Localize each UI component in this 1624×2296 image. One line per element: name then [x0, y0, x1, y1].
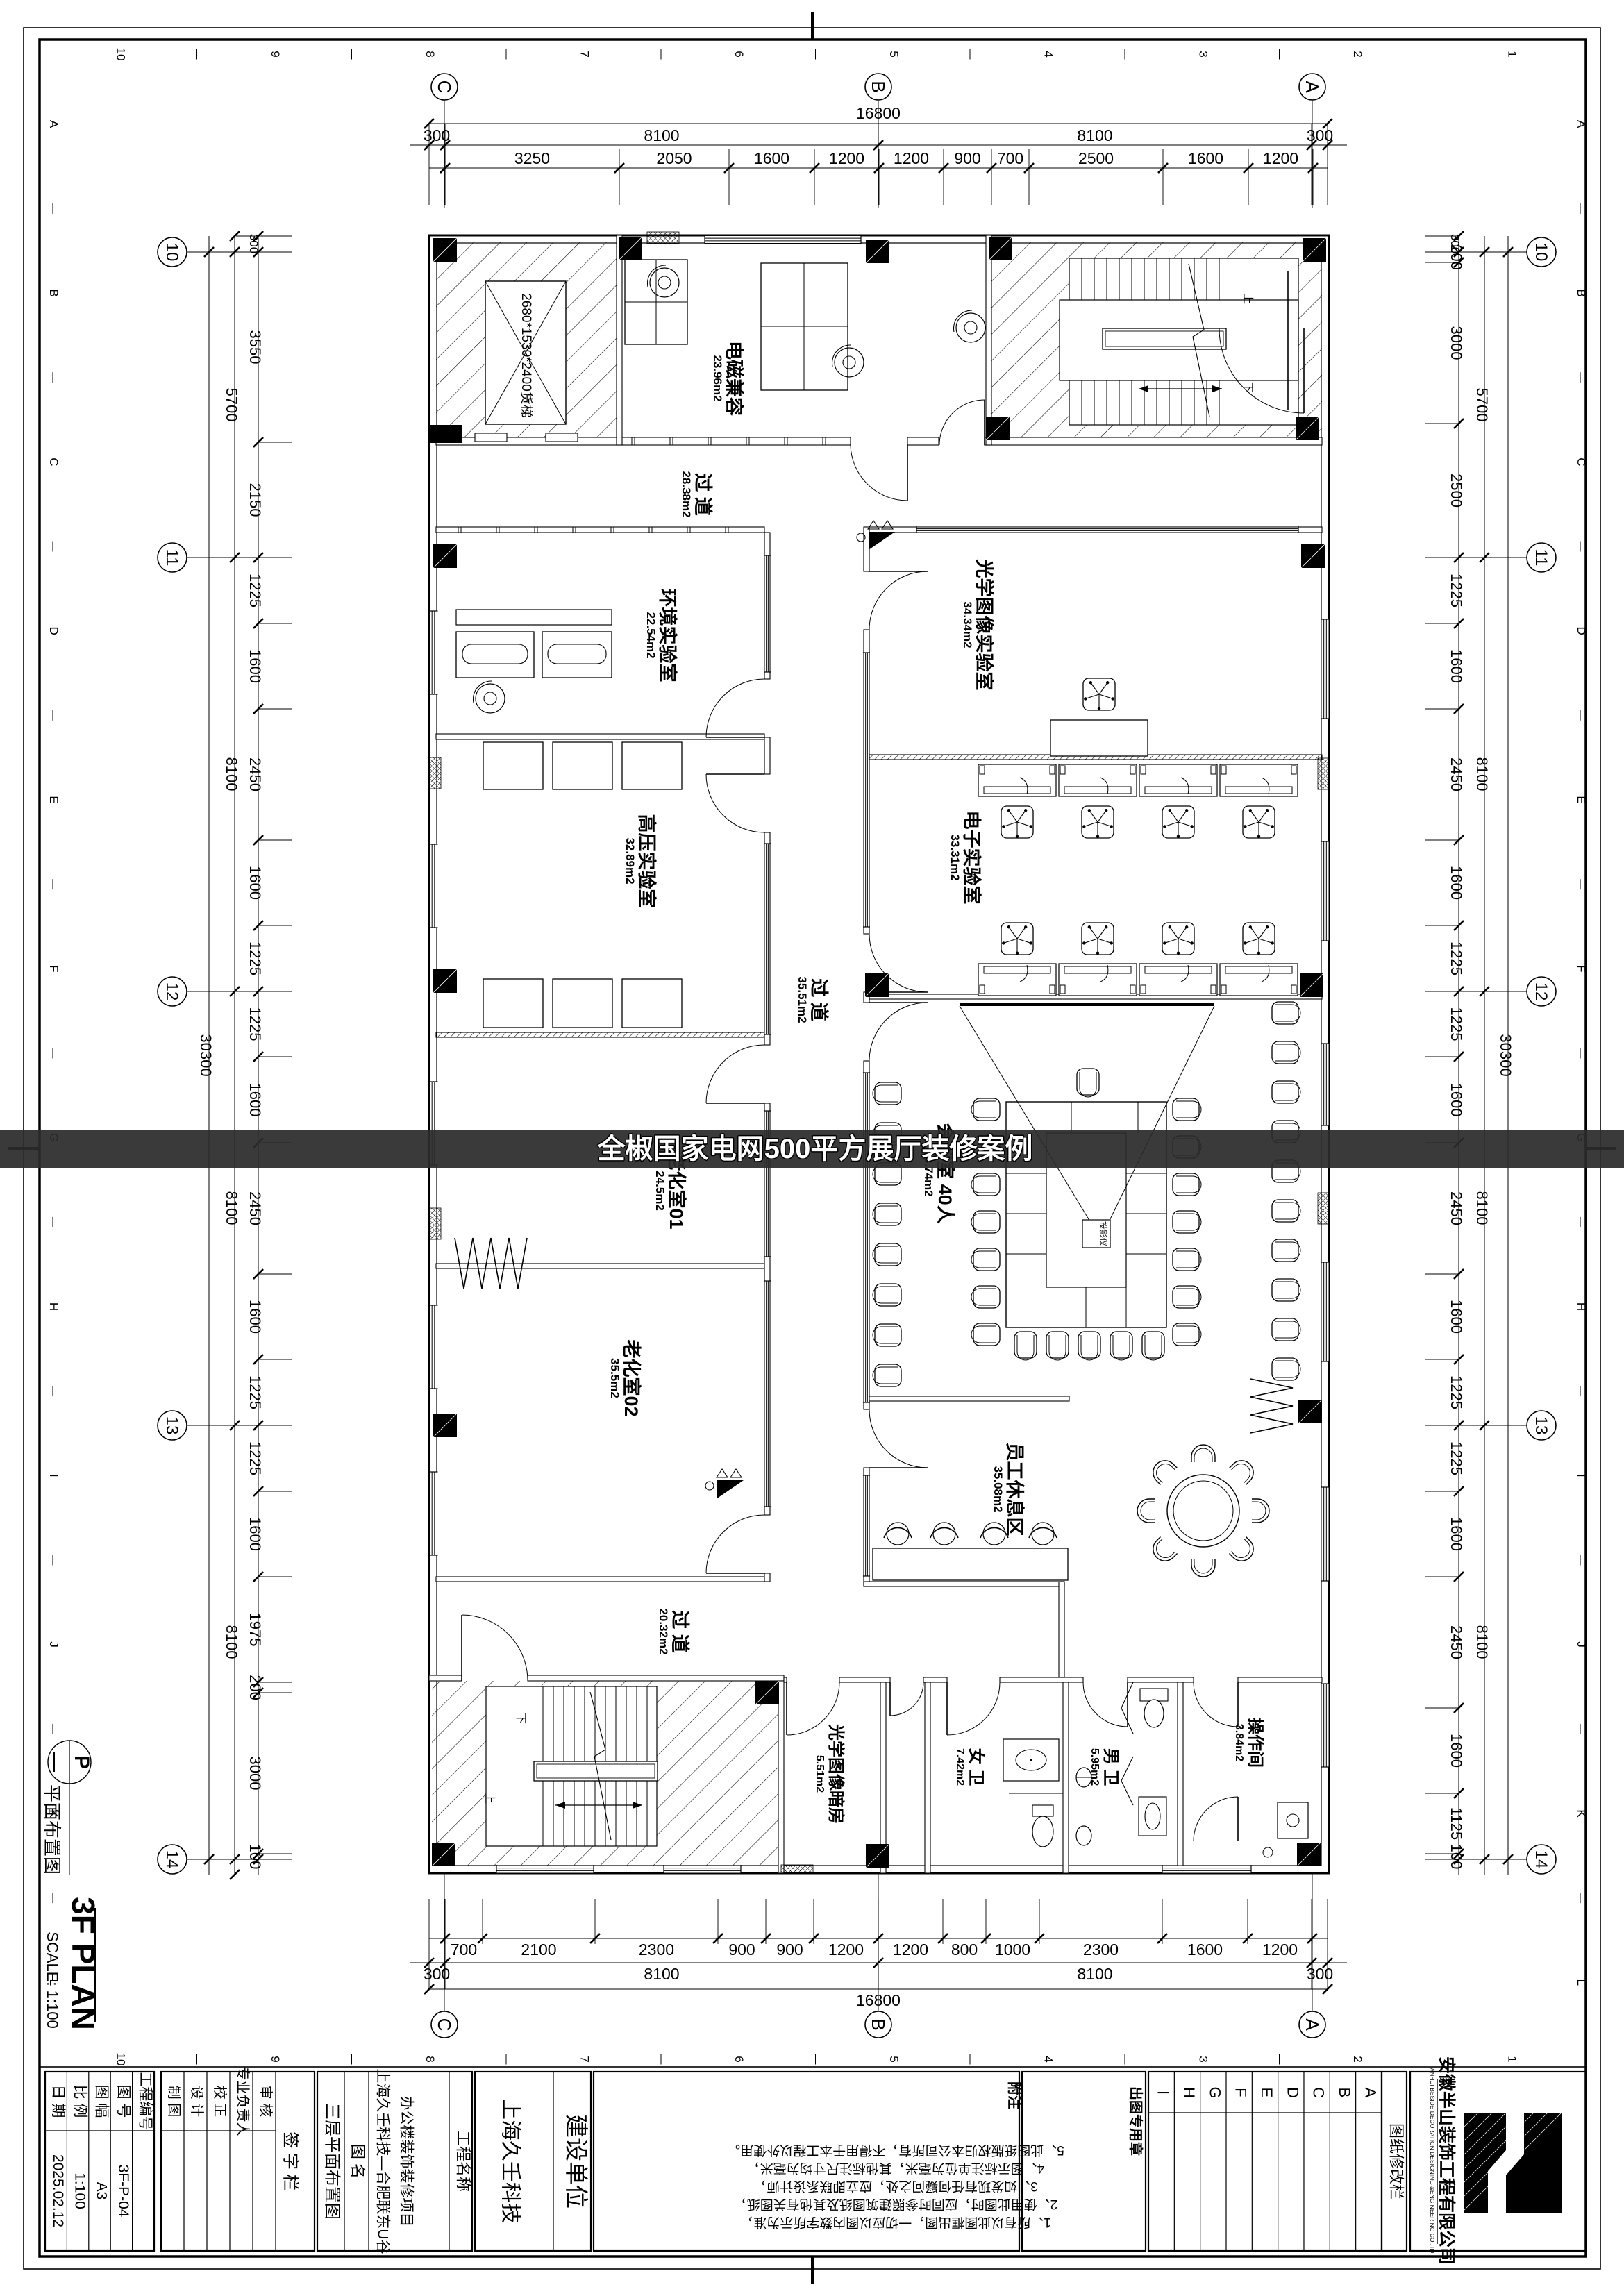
svg-text:1600: 1600 — [1448, 1083, 1465, 1117]
svg-text:10: 10 — [1532, 243, 1550, 262]
svg-text:办公楼装饰装修项目: 办公楼装饰装修项目 — [398, 2096, 414, 2227]
svg-text:1600: 1600 — [1448, 866, 1465, 900]
svg-text:300: 300 — [1448, 234, 1462, 253]
svg-text:—: — — [655, 2054, 667, 2065]
svg-text:三层平面布置图: 三层平面布置图 — [322, 2103, 341, 2220]
svg-text:1: 1 — [1506, 2056, 1519, 2062]
svg-text:—: — — [346, 49, 358, 59]
svg-text:3000: 3000 — [1448, 326, 1465, 360]
svg-text:1125: 1125 — [1448, 1807, 1465, 1840]
svg-text:L: L — [1575, 1979, 1588, 1986]
svg-text:900: 900 — [728, 1941, 755, 1959]
svg-text:过 道: 过 道 — [669, 1610, 691, 1653]
svg-text:K: K — [1575, 1809, 1588, 1818]
svg-text:2450: 2450 — [1448, 1625, 1465, 1659]
svg-text:2450: 2450 — [1448, 1191, 1465, 1225]
svg-text:J: J — [47, 1641, 60, 1648]
svg-text:B: B — [1575, 289, 1588, 296]
svg-text:员工休息区: 员工休息区 — [1004, 1443, 1026, 1536]
svg-text:2300: 2300 — [639, 1941, 674, 1959]
svg-text:审 核: 审 核 — [258, 2086, 274, 2118]
svg-text:9: 9 — [269, 51, 282, 57]
svg-text:2、使用此图时，应同时参照建筑图纸及其他有关图纸，: 2、使用此图时，应同时参照建筑图纸及其他有关图纸， — [734, 2197, 1058, 2212]
svg-text:—: — — [1575, 710, 1587, 721]
svg-text:32.89m2: 32.89m2 — [623, 837, 637, 884]
svg-text:900: 900 — [954, 149, 980, 167]
svg-text:1600: 1600 — [1187, 1941, 1223, 1959]
svg-text:8100: 8100 — [223, 1191, 240, 1225]
svg-text:5: 5 — [887, 2056, 901, 2062]
svg-text:—: — — [346, 2054, 358, 2065]
svg-text:B: B — [868, 2018, 889, 2030]
svg-text:800: 800 — [951, 1941, 978, 1959]
svg-text:13: 13 — [1532, 1416, 1550, 1435]
svg-text:1600: 1600 — [1188, 149, 1223, 167]
svg-text:D: D — [1575, 627, 1588, 635]
svg-text:1200: 1200 — [893, 1941, 928, 1959]
svg-text:700: 700 — [997, 149, 1023, 167]
svg-text:5.51m2: 5.51m2 — [814, 1755, 826, 1793]
svg-text:—: — — [501, 49, 512, 60]
svg-text:3: 3 — [1196, 51, 1209, 57]
svg-text:—: — — [810, 2054, 822, 2065]
svg-text:5700: 5700 — [223, 388, 240, 422]
svg-text:ANHUI BESIDE DECORATION DESIGN: ANHUI BESIDE DECORATION DESIGNING &ENGIN… — [1429, 2068, 1436, 2253]
svg-text:8100: 8100 — [223, 757, 240, 791]
svg-text:男 卫: 男 卫 — [1101, 1748, 1120, 1786]
svg-text:图 名: 图 名 — [349, 2144, 367, 2179]
svg-text:—: — — [1119, 2054, 1131, 2065]
svg-text:电磁兼容: 电磁兼容 — [723, 341, 745, 416]
svg-text:J: J — [1575, 1641, 1588, 1648]
svg-text:女 卫: 女 卫 — [966, 1748, 986, 1786]
svg-text:30300: 30300 — [1497, 1034, 1514, 1076]
svg-text:—: — — [1274, 49, 1286, 60]
svg-text:平面布置图: 平面布置图 — [42, 1784, 62, 1875]
svg-text:H: H — [47, 1302, 60, 1311]
svg-text:30300: 30300 — [197, 1034, 215, 1076]
svg-text:—: — — [1575, 879, 1587, 889]
svg-text:—: — — [47, 710, 59, 721]
svg-text:D: D — [47, 627, 60, 635]
svg-text:制 图: 制 图 — [166, 2086, 182, 2118]
svg-text:1600: 1600 — [246, 1300, 264, 1334]
svg-text:1200: 1200 — [829, 149, 864, 167]
svg-text:—: — — [1428, 49, 1440, 60]
svg-text:20.32m2: 20.32m2 — [657, 1608, 670, 1654]
svg-text:7: 7 — [578, 51, 591, 57]
svg-text:A: A — [47, 120, 60, 128]
svg-text:C: C — [1575, 458, 1588, 466]
svg-text:E: E — [1258, 2088, 1275, 2098]
svg-text:—: — — [501, 2054, 512, 2065]
svg-text:23.96m2: 23.96m2 — [711, 355, 724, 401]
svg-text:3000: 3000 — [246, 1757, 264, 1791]
svg-text:高压实验室: 高压实验室 — [636, 814, 658, 908]
svg-text:校 正: 校 正 — [212, 2086, 228, 2118]
svg-text:300: 300 — [424, 126, 450, 144]
svg-text:—: — — [964, 49, 976, 60]
svg-text:7: 7 — [578, 2056, 591, 2062]
svg-text:10: 10 — [162, 243, 181, 262]
svg-text:C: C — [434, 81, 455, 94]
svg-text:1600: 1600 — [1448, 1300, 1465, 1334]
svg-text:2450: 2450 — [1448, 757, 1465, 791]
svg-text:1200: 1200 — [1262, 1941, 1298, 1959]
svg-text:3F PLAN: 3F PLAN — [65, 1897, 101, 2030]
svg-text:过 道: 过 道 — [692, 473, 714, 516]
svg-text:—: — — [1119, 49, 1131, 60]
svg-text:2150: 2150 — [246, 483, 264, 517]
svg-text:3.84m2: 3.84m2 — [1233, 1724, 1245, 1761]
svg-text:300: 300 — [247, 234, 260, 253]
svg-text:1、所有以此图框出图，一切应以图内数字所示为准，: 1、所有以此图框出图，一切应以图内数字所示为准， — [740, 2215, 1051, 2230]
svg-text:—: — — [1575, 1893, 1587, 1903]
svg-text:12: 12 — [1532, 982, 1550, 1001]
svg-text:P: P — [70, 1755, 93, 1769]
svg-text:G: G — [1206, 2086, 1223, 2098]
svg-text:6: 6 — [733, 2056, 746, 2062]
svg-text:35.08m2: 35.08m2 — [991, 1466, 1005, 1512]
svg-text:8: 8 — [424, 51, 437, 57]
svg-text:1200: 1200 — [894, 149, 929, 167]
svg-text:300: 300 — [1307, 1965, 1333, 1983]
svg-text:3250: 3250 — [514, 149, 550, 167]
svg-text:1225: 1225 — [246, 1007, 264, 1041]
svg-text:35.51m2: 35.51m2 — [796, 976, 809, 1023]
svg-text:2100: 2100 — [521, 1941, 556, 1959]
svg-text:8100: 8100 — [1077, 126, 1112, 144]
svg-text:C: C — [1310, 2087, 1328, 2098]
svg-text:12: 12 — [162, 982, 181, 1001]
svg-text:5700: 5700 — [1473, 388, 1491, 422]
svg-text:建设单位: 建设单位 — [562, 2114, 589, 2209]
svg-text:3: 3 — [1196, 2056, 1209, 2062]
svg-text:环境实验室: 环境实验室 — [657, 589, 678, 682]
svg-text:—: — — [47, 203, 59, 214]
svg-text:设 计: 设 计 — [189, 2086, 205, 2118]
svg-text:E: E — [47, 796, 60, 803]
svg-text:A: A — [1362, 2088, 1379, 2098]
svg-text:SCALE: 1:100: SCALE: 1:100 — [44, 1932, 61, 2028]
svg-text:图 幅: 图 幅 — [94, 2085, 110, 2118]
svg-text:I: I — [1155, 2090, 1172, 2095]
svg-text:—: — — [1575, 1386, 1587, 1396]
svg-text:—: — — [47, 372, 59, 383]
svg-text:A3: A3 — [94, 2182, 110, 2200]
svg-text:2025.02.12: 2025.02.12 — [50, 2154, 66, 2227]
svg-text:6: 6 — [733, 51, 746, 57]
svg-text:9: 9 — [269, 2056, 282, 2062]
svg-text:1975: 1975 — [246, 1613, 264, 1647]
svg-text:700: 700 — [451, 1941, 477, 1959]
svg-text:—: — — [810, 49, 822, 60]
svg-text:投影仪: 投影仪 — [1098, 1221, 1109, 1246]
svg-text:1225: 1225 — [246, 1441, 264, 1475]
svg-text:1: 1 — [1506, 51, 1519, 57]
svg-text:—: — — [47, 879, 59, 889]
svg-text:3550: 3550 — [246, 330, 264, 364]
svg-text:—: — — [1575, 1217, 1587, 1227]
svg-text:34.34m2: 34.34m2 — [961, 601, 974, 648]
svg-text:—: — — [47, 1555, 59, 1566]
svg-text:出图专用章: 出图专用章 — [1128, 2086, 1144, 2156]
svg-text:8100: 8100 — [223, 1625, 240, 1659]
svg-text:—: — — [1575, 542, 1587, 552]
svg-text:4、图示标注单位为毫米，其他标注尺寸均为毫米，: 4、图示标注单位为毫米，其他标注尺寸均为毫米， — [747, 2161, 1045, 2176]
svg-text:B: B — [868, 81, 889, 92]
svg-text:H: H — [1180, 2087, 1198, 2098]
svg-text:10: 10 — [114, 2053, 127, 2066]
svg-text:8100: 8100 — [644, 126, 679, 144]
svg-text:F: F — [1232, 2088, 1250, 2097]
svg-text:2450: 2450 — [246, 757, 264, 791]
svg-text:比 例: 比 例 — [72, 2085, 87, 2118]
svg-text:老化室02: 老化室02 — [621, 1339, 642, 1416]
svg-text:2500: 2500 — [1448, 474, 1465, 508]
svg-text:—: — — [47, 1386, 59, 1396]
svg-text:3F-P-04: 3F-P-04 — [115, 2165, 131, 2218]
svg-text:—: — — [1575, 1555, 1587, 1566]
svg-text:2680*1530*2400货梯: 2680*1530*2400货梯 — [519, 293, 534, 418]
svg-text:16800: 16800 — [856, 104, 901, 122]
svg-text:光学图像暗房: 光学图像暗房 — [826, 1723, 846, 1824]
svg-text:5: 5 — [887, 51, 901, 57]
svg-text:上海久壬科技: 上海久壬科技 — [499, 2099, 522, 2224]
svg-text:—: — — [47, 1217, 59, 1227]
svg-text:1225: 1225 — [1448, 1441, 1465, 1475]
svg-text:8100: 8100 — [1473, 1191, 1491, 1225]
svg-text:1600: 1600 — [1448, 649, 1465, 683]
svg-text:C: C — [434, 2018, 455, 2031]
svg-text:1600: 1600 — [246, 649, 264, 683]
svg-text:24.5m2: 24.5m2 — [653, 1171, 667, 1211]
svg-text:—: — — [192, 2054, 203, 2065]
svg-text:300: 300 — [1307, 126, 1333, 144]
svg-text:7.42m2: 7.42m2 — [954, 1748, 966, 1786]
svg-text:下: 下 — [514, 1713, 526, 1724]
svg-text:—: — — [47, 542, 59, 552]
svg-text:—: — — [192, 49, 203, 60]
svg-text:2300: 2300 — [1083, 1941, 1119, 1959]
svg-text:—: — — [47, 1893, 59, 1903]
svg-text:8100: 8100 — [1473, 1625, 1491, 1659]
svg-text:上: 上 — [1241, 293, 1254, 304]
svg-text:C: C — [47, 458, 60, 466]
svg-text:900: 900 — [776, 1941, 803, 1959]
svg-text:1225: 1225 — [1448, 573, 1465, 607]
svg-text:2050: 2050 — [656, 149, 692, 167]
svg-text:—: — — [1575, 1048, 1587, 1059]
svg-text:5、此图纸版权归本公司所有，不得用于本工程以外使用。: 5、此图纸版权归本公司所有，不得用于本工程以外使用。 — [727, 2143, 1064, 2158]
svg-text:1:100: 1:100 — [72, 2172, 87, 2209]
svg-text:1225: 1225 — [246, 1375, 264, 1409]
svg-text:安徽半山装饰工程有限公司: 安徽半山装饰工程有限公司 — [1437, 2056, 1457, 2265]
svg-text:D: D — [1284, 2087, 1301, 2098]
svg-text:F: F — [47, 965, 60, 972]
svg-text:13: 13 — [162, 1416, 181, 1435]
svg-text:2500: 2500 — [1078, 149, 1114, 167]
svg-text:28.38m2: 28.38m2 — [680, 471, 693, 517]
svg-text:B: B — [1336, 2088, 1353, 2098]
svg-text:1000: 1000 — [995, 1941, 1030, 1959]
svg-text:14: 14 — [1532, 1850, 1550, 1869]
svg-text:14: 14 — [162, 1850, 181, 1869]
svg-text:11: 11 — [1532, 549, 1550, 567]
svg-text:专业负责人: 专业负责人 — [235, 2067, 251, 2136]
svg-text:8: 8 — [424, 2056, 437, 2062]
svg-text:操作间: 操作间 — [1246, 1718, 1264, 1768]
svg-text:过 道: 过 道 — [808, 978, 830, 1021]
svg-text:I: I — [47, 1474, 60, 1477]
svg-text:2: 2 — [1351, 51, 1364, 57]
svg-text:H: H — [1575, 1302, 1588, 1311]
svg-text:35.5m2: 35.5m2 — [608, 1358, 621, 1398]
svg-text:—: — — [655, 49, 667, 60]
svg-text:1225: 1225 — [246, 941, 264, 975]
svg-text:1600: 1600 — [1448, 1734, 1465, 1768]
svg-text:A: A — [1302, 81, 1323, 93]
svg-text:1225: 1225 — [1448, 1375, 1465, 1409]
svg-text:4: 4 — [1042, 51, 1055, 57]
svg-text:上海久壬科技—合肥联东U谷: 上海久壬科技—合肥联东U谷 — [374, 2068, 390, 2254]
svg-text:11: 11 — [162, 549, 181, 567]
svg-text:2: 2 — [1351, 2056, 1364, 2062]
svg-text:A: A — [1302, 2018, 1323, 2031]
svg-text:—: — — [47, 1724, 59, 1734]
svg-text:22.54m2: 22.54m2 — [644, 612, 658, 658]
svg-text:4: 4 — [1042, 2056, 1055, 2062]
svg-text:F: F — [1575, 965, 1588, 972]
svg-text:8100: 8100 — [1473, 757, 1491, 791]
svg-text:8100: 8100 — [644, 1965, 679, 1983]
svg-text:3、如发现有任何疑问之处，应立即联系设计师，: 3、如发现有任何疑问之处，应立即联系设计师， — [753, 2179, 1038, 2194]
svg-text:工程编号: 工程编号 — [137, 2072, 153, 2131]
svg-text:日 期: 日 期 — [50, 2085, 66, 2118]
svg-text:—: — — [1274, 2054, 1286, 2065]
svg-text:图纸修改栏: 图纸修改栏 — [1388, 2123, 1405, 2199]
svg-text:工程名称: 工程名称 — [455, 2131, 472, 2192]
svg-text:图 号: 图 号 — [115, 2085, 131, 2118]
svg-text:1200: 1200 — [828, 1941, 864, 1959]
svg-text:33.31m2: 33.31m2 — [948, 834, 962, 880]
svg-text:2450: 2450 — [246, 1191, 264, 1225]
svg-text:1600: 1600 — [246, 866, 264, 900]
svg-text:1600: 1600 — [754, 149, 789, 167]
svg-text:上: 上 — [483, 1793, 496, 1804]
svg-text:A: A — [1575, 120, 1588, 128]
svg-text:1225: 1225 — [1448, 1007, 1465, 1041]
svg-text:1200: 1200 — [1263, 149, 1298, 167]
svg-text:附注: 附注 — [1006, 2081, 1023, 2109]
svg-text:—: — — [47, 1048, 59, 1059]
svg-text:1600: 1600 — [246, 1083, 264, 1117]
svg-text:5.95m2: 5.95m2 — [1089, 1748, 1100, 1786]
svg-text:光学图像实验室: 光学图像实验室 — [973, 559, 995, 691]
svg-text:—: — — [1575, 372, 1587, 383]
svg-text:1225: 1225 — [246, 573, 264, 607]
svg-text:—: — — [1575, 1724, 1587, 1734]
svg-text:—: — — [1575, 203, 1587, 214]
svg-text:10: 10 — [114, 48, 127, 61]
svg-text:8100: 8100 — [1077, 1965, 1112, 1983]
svg-text:1225: 1225 — [1448, 941, 1465, 975]
svg-text:1600: 1600 — [1448, 1517, 1465, 1551]
svg-text:—: — — [964, 2054, 976, 2065]
svg-text:B: B — [47, 289, 60, 296]
svg-text:签 字 栏: 签 字 栏 — [281, 2131, 299, 2190]
svg-text:电子实验室: 电子实验室 — [961, 811, 982, 905]
svg-text:1600: 1600 — [246, 1517, 264, 1551]
svg-text:全椒国家电网500平方展厅装修案例: 全椒国家电网500平方展厅装修案例 — [597, 1133, 1033, 1164]
svg-text:300: 300 — [424, 1965, 450, 1983]
svg-text:E: E — [1575, 796, 1588, 803]
svg-text:I: I — [1575, 1474, 1588, 1477]
